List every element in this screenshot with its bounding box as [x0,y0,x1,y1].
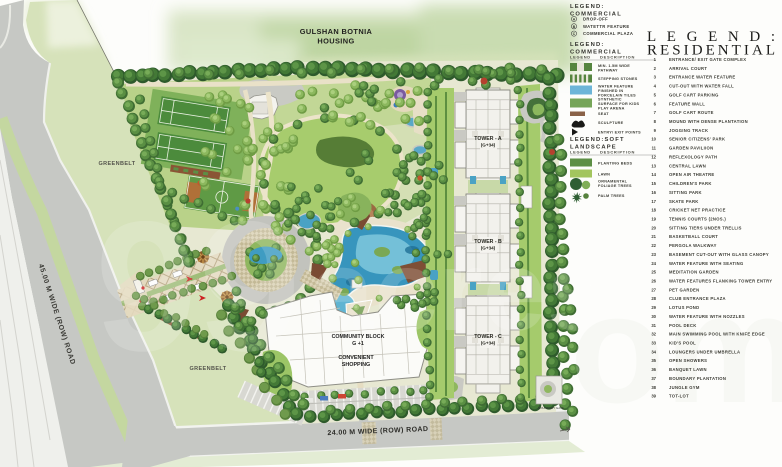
svg-text:LOTUS POND: LOTUS POND [669,305,699,310]
svg-text:15: 15 [651,181,656,186]
svg-text:ENTRY/ EXIT POINTS: ENTRY/ EXIT POINTS [598,131,641,135]
svg-text:WATETTR FEATURE: WATETTR FEATURE [583,24,630,29]
svg-text:SEAT: SEAT [598,112,609,116]
svg-text:SITTING PARK: SITTING PARK [669,190,702,195]
svg-text:18: 18 [651,208,656,213]
svg-text:PLAY ARENA: PLAY ARENA [598,107,625,111]
svg-text:23: 23 [651,252,656,257]
svg-text:PLANTING BEDS: PLANTING BEDS [598,162,632,166]
svg-text:CHILDREN'S PARK: CHILDREN'S PARK [669,181,712,186]
svg-text:HOUSING: HOUSING [317,37,354,46]
svg-text:20: 20 [651,225,656,230]
svg-text:LEGEND: LEGEND [570,150,591,155]
svg-text:34: 34 [651,349,656,354]
svg-text:26: 26 [651,279,656,284]
svg-text:MEDITATION GARDEN: MEDITATION GARDEN [669,270,719,275]
svg-text:SHOPPING: SHOPPING [342,362,370,368]
svg-text:WATER FEATURES FLANKING TOWER: WATER FEATURES FLANKING TOWER ENTRY [669,279,772,284]
svg-text:TOT-LOT: TOT-LOT [669,394,689,399]
svg-text:OPEN AIR THEATRE: OPEN AIR THEATRE [669,172,715,177]
svg-text:SYNTHETIC: SYNTHETIC [598,98,622,102]
svg-text:acres: acres [310,227,611,355]
svg-text:FOLIAGE TREES: FOLIAGE TREES [598,184,632,188]
svg-text:19: 19 [651,217,656,222]
svg-text:LEGEND:: LEGEND: [570,42,605,48]
svg-text:33: 33 [651,341,656,346]
svg-text:MIN. 1.5M WIDE: MIN. 1.5M WIDE [598,64,630,68]
svg-text:PALM TREES: PALM TREES [598,194,625,198]
svg-text:LOUNGERS UNDER UMBRELLA: LOUNGERS UNDER UMBRELLA [669,349,740,354]
svg-text:CLUB ENTRANCE PLAZA: CLUB ENTRANCE PLAZA [669,296,726,301]
svg-text:CUT-OUT WITH WATER FALL: CUT-OUT WITH WATER FALL [669,84,734,89]
svg-text:GARDEN PAVILIION: GARDEN PAVILIION [669,146,713,151]
svg-text:TOWER - A: TOWER - A [474,136,502,142]
svg-text:22: 22 [651,243,656,248]
svg-text:BANQUET LAWN: BANQUET LAWN [669,367,707,372]
svg-text:SKATE PARK: SKATE PARK [669,199,699,204]
svg-text:STEPPING STONES: STEPPING STONES [598,77,638,81]
svg-text:38: 38 [651,385,656,390]
svg-text:WATER FEATURE WITH NOZZLES: WATER FEATURE WITH NOZZLES [669,314,745,319]
svg-text:27: 27 [651,287,656,292]
svg-text:ARRIVAL COURT: ARRIVAL COURT [669,66,707,71]
svg-text:PERGOLA WALKWAY: PERGOLA WALKWAY [669,243,717,248]
svg-text:POOL DECK: POOL DECK [669,323,697,328]
svg-text:MAIN SWIMMING POOL WITH KNIFE: MAIN SWIMMING POOL WITH KNIFE EDGE [669,332,765,337]
svg-text:GREENBELT: GREENBELT [98,161,135,167]
svg-text:37: 37 [651,376,656,381]
svg-text:BOUNDARY GATE: BOUNDARY GATE [538,406,564,410]
svg-text:TENNIS COURTS (2NOS.): TENNIS COURTS (2NOS.) [669,217,726,222]
svg-text:SURFACE FOR KIDS: SURFACE FOR KIDS [598,102,640,106]
svg-text:GOLF CART ROUTE: GOLF CART ROUTE [669,110,714,115]
svg-text:ORNAMENTAL: ORNAMENTAL [598,180,628,184]
svg-text:WATER FEATURE: WATER FEATURE [598,85,634,89]
svg-text:SITTING TIERS UNDER TRELLIS: SITTING TIERS UNDER TRELLIS [669,225,742,230]
svg-text:CONVENIENT: CONVENIENT [338,355,374,361]
svg-text:LAWN: LAWN [598,173,610,177]
svg-text:11: 11 [652,146,657,151]
svg-text:BOUNDARY PLANTATION: BOUNDARY PLANTATION [669,376,726,381]
svg-text:DESCRIPTION: DESCRIPTION [600,55,635,60]
svg-text:OPEN SHOWERS: OPEN SHOWERS [669,358,707,363]
svg-text:ENTRANCE/ EXIT GATE COMPLEX: ENTRANCE/ EXIT GATE COMPLEX [669,57,746,62]
svg-text:36: 36 [651,367,656,372]
svg-text:JUNGLE GYM: JUNGLE GYM [669,385,700,390]
svg-text:DESCRIPTION: DESCRIPTION [600,150,635,155]
svg-text:14: 14 [651,172,656,177]
svg-text:39: 39 [651,394,656,399]
svg-text:GREENBELT: GREENBELT [189,366,226,372]
svg-text:32: 32 [651,332,656,337]
svg-text:10: 10 [651,137,656,142]
svg-text:17: 17 [651,199,656,204]
svg-text:28: 28 [651,296,656,301]
svg-text:BASKETBALL COURT: BASKETBALL COURT [669,234,718,239]
svg-text:JOGGING TRACK: JOGGING TRACK [669,128,708,133]
svg-text:16: 16 [651,190,656,195]
svg-text:12: 12 [651,155,656,160]
svg-text:COMMERCIAL PLAZA: COMMERCIAL PLAZA [583,31,633,36]
svg-text:29: 29 [651,305,656,310]
svg-text:30: 30 [651,314,656,319]
svg-text:CENTRAL LAWN: CENTRAL LAWN [669,163,706,168]
svg-text:GULSHAN BOTNIA: GULSHAN BOTNIA [300,27,373,36]
svg-text:LEGEND:SOFT: LEGEND:SOFT [570,137,625,143]
svg-text:SENIOR CITIZENS' PARK: SENIOR CITIZENS' PARK [669,137,725,142]
svg-text:13: 13 [651,163,656,168]
svg-text:FINISHED IN: FINISHED IN [598,89,623,93]
svg-text:BASEMENT CUT-OUT WITH GLASS CA: BASEMENT CUT-OUT WITH GLASS CANOPY [669,252,769,257]
svg-text:99: 99 [95,184,301,390]
svg-text:PET GARDEN: PET GARDEN [669,287,699,292]
svg-text:31: 31 [651,323,656,328]
svg-text:FEATURE WALL: FEATURE WALL [669,101,705,106]
svg-text:LEGEND:: LEGEND: [570,4,605,10]
svg-text:SCULPTURE: SCULPTURE [598,121,624,125]
svg-text:(G+34): (G+34) [481,143,496,148]
svg-text:PATHWAY: PATHWAY [598,69,618,73]
svg-text:21: 21 [651,234,656,239]
svg-text:35: 35 [651,358,656,363]
svg-text:REFLEXOLOGY PATH: REFLEXOLOGY PATH [669,155,717,160]
svg-text:DROP-OFF: DROP-OFF [583,17,608,22]
svg-text:LEGEND: LEGEND [570,55,591,60]
svg-text:MOUND WITH DENSE PLANTATION: MOUND WITH DENSE PLANTATION [669,119,748,124]
svg-text:WATER FEATURE WITH SEATING: WATER FEATURE WITH SEATING [669,261,744,266]
svg-text:GOLF CART PARKING: GOLF CART PARKING [669,92,719,97]
svg-text:CRICKET NET PRACTICE: CRICKET NET PRACTICE [669,208,726,213]
svg-text:24: 24 [651,261,656,266]
svg-text:ENTRANCE WATER FEATURE: ENTRANCE WATER FEATURE [669,75,735,80]
svg-text:KID'S POOL: KID'S POOL [669,341,696,346]
svg-text:25: 25 [651,270,656,275]
